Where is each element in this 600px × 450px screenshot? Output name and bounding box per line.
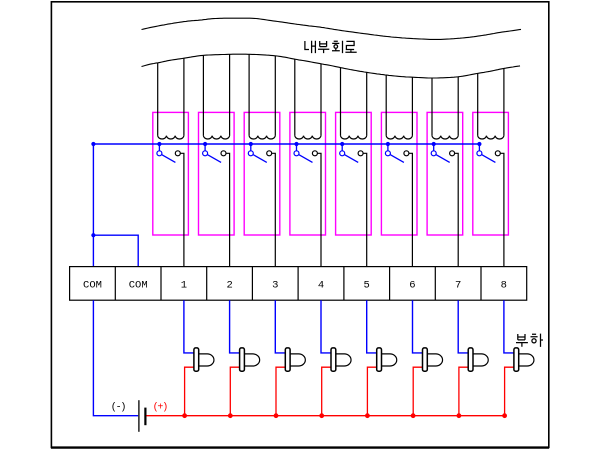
svg-text:COM: COM xyxy=(129,280,148,292)
svg-text:3: 3 xyxy=(272,280,278,292)
svg-text:(+): (+) xyxy=(153,401,168,413)
svg-text:5: 5 xyxy=(364,280,370,292)
svg-text:7: 7 xyxy=(455,280,461,292)
svg-text:2: 2 xyxy=(226,280,232,292)
svg-text:COM: COM xyxy=(83,280,102,292)
svg-text:6: 6 xyxy=(409,280,415,292)
svg-text:8: 8 xyxy=(501,280,507,292)
svg-text:(-): (-) xyxy=(111,401,126,413)
svg-text:1: 1 xyxy=(181,280,187,292)
svg-text:4: 4 xyxy=(318,280,324,292)
